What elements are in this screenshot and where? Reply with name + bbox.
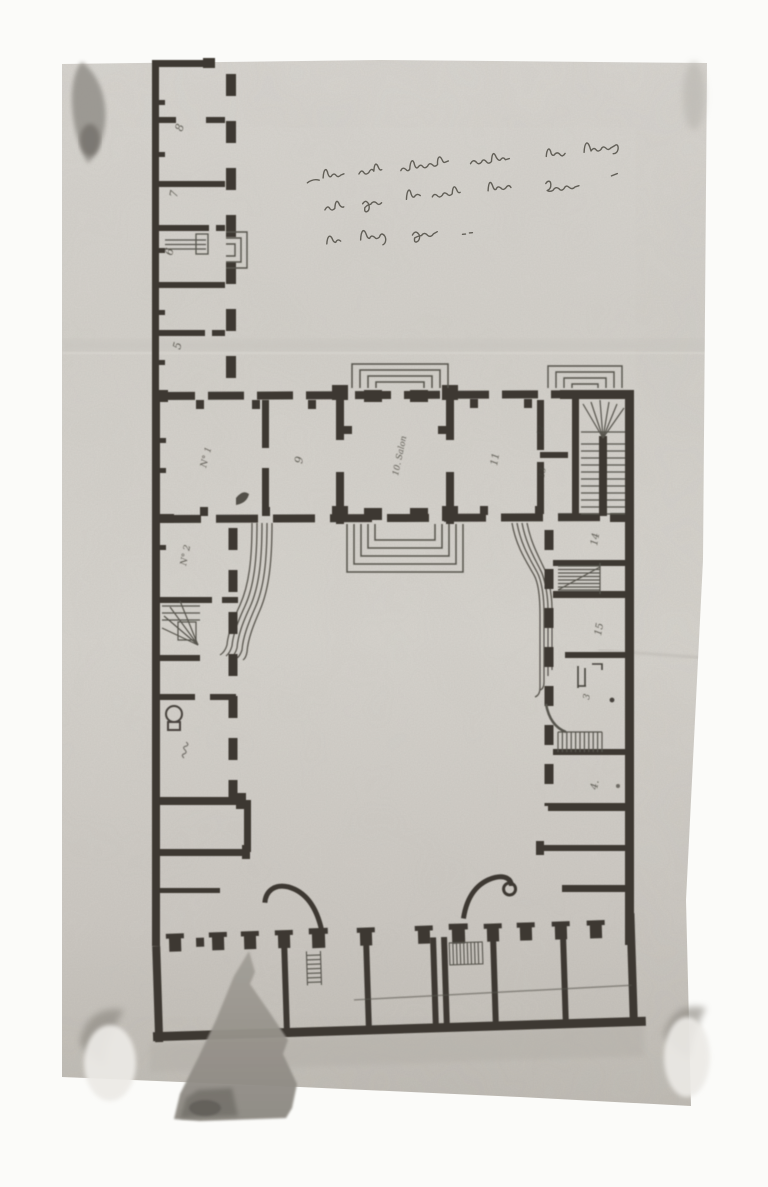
corner-disc-bottom-right [664, 1017, 710, 1097]
room-label-12: 12 [535, 425, 546, 437]
room-label-4: 4. [589, 779, 602, 791]
scanned-plan-photograph: 8 7 6 5 [0, 0, 768, 1187]
room-label-14: 14 [589, 532, 602, 546]
room-label-11: 11 [489, 452, 502, 466]
room-label-15: 15 [593, 622, 606, 636]
smudge-core [80, 124, 100, 156]
album-page: 8 7 6 5 [0, 0, 768, 1187]
room-label-13: 13 [537, 467, 548, 479]
corner-disc-bottom-left [84, 1025, 136, 1101]
smudge-top-right [683, 62, 705, 130]
